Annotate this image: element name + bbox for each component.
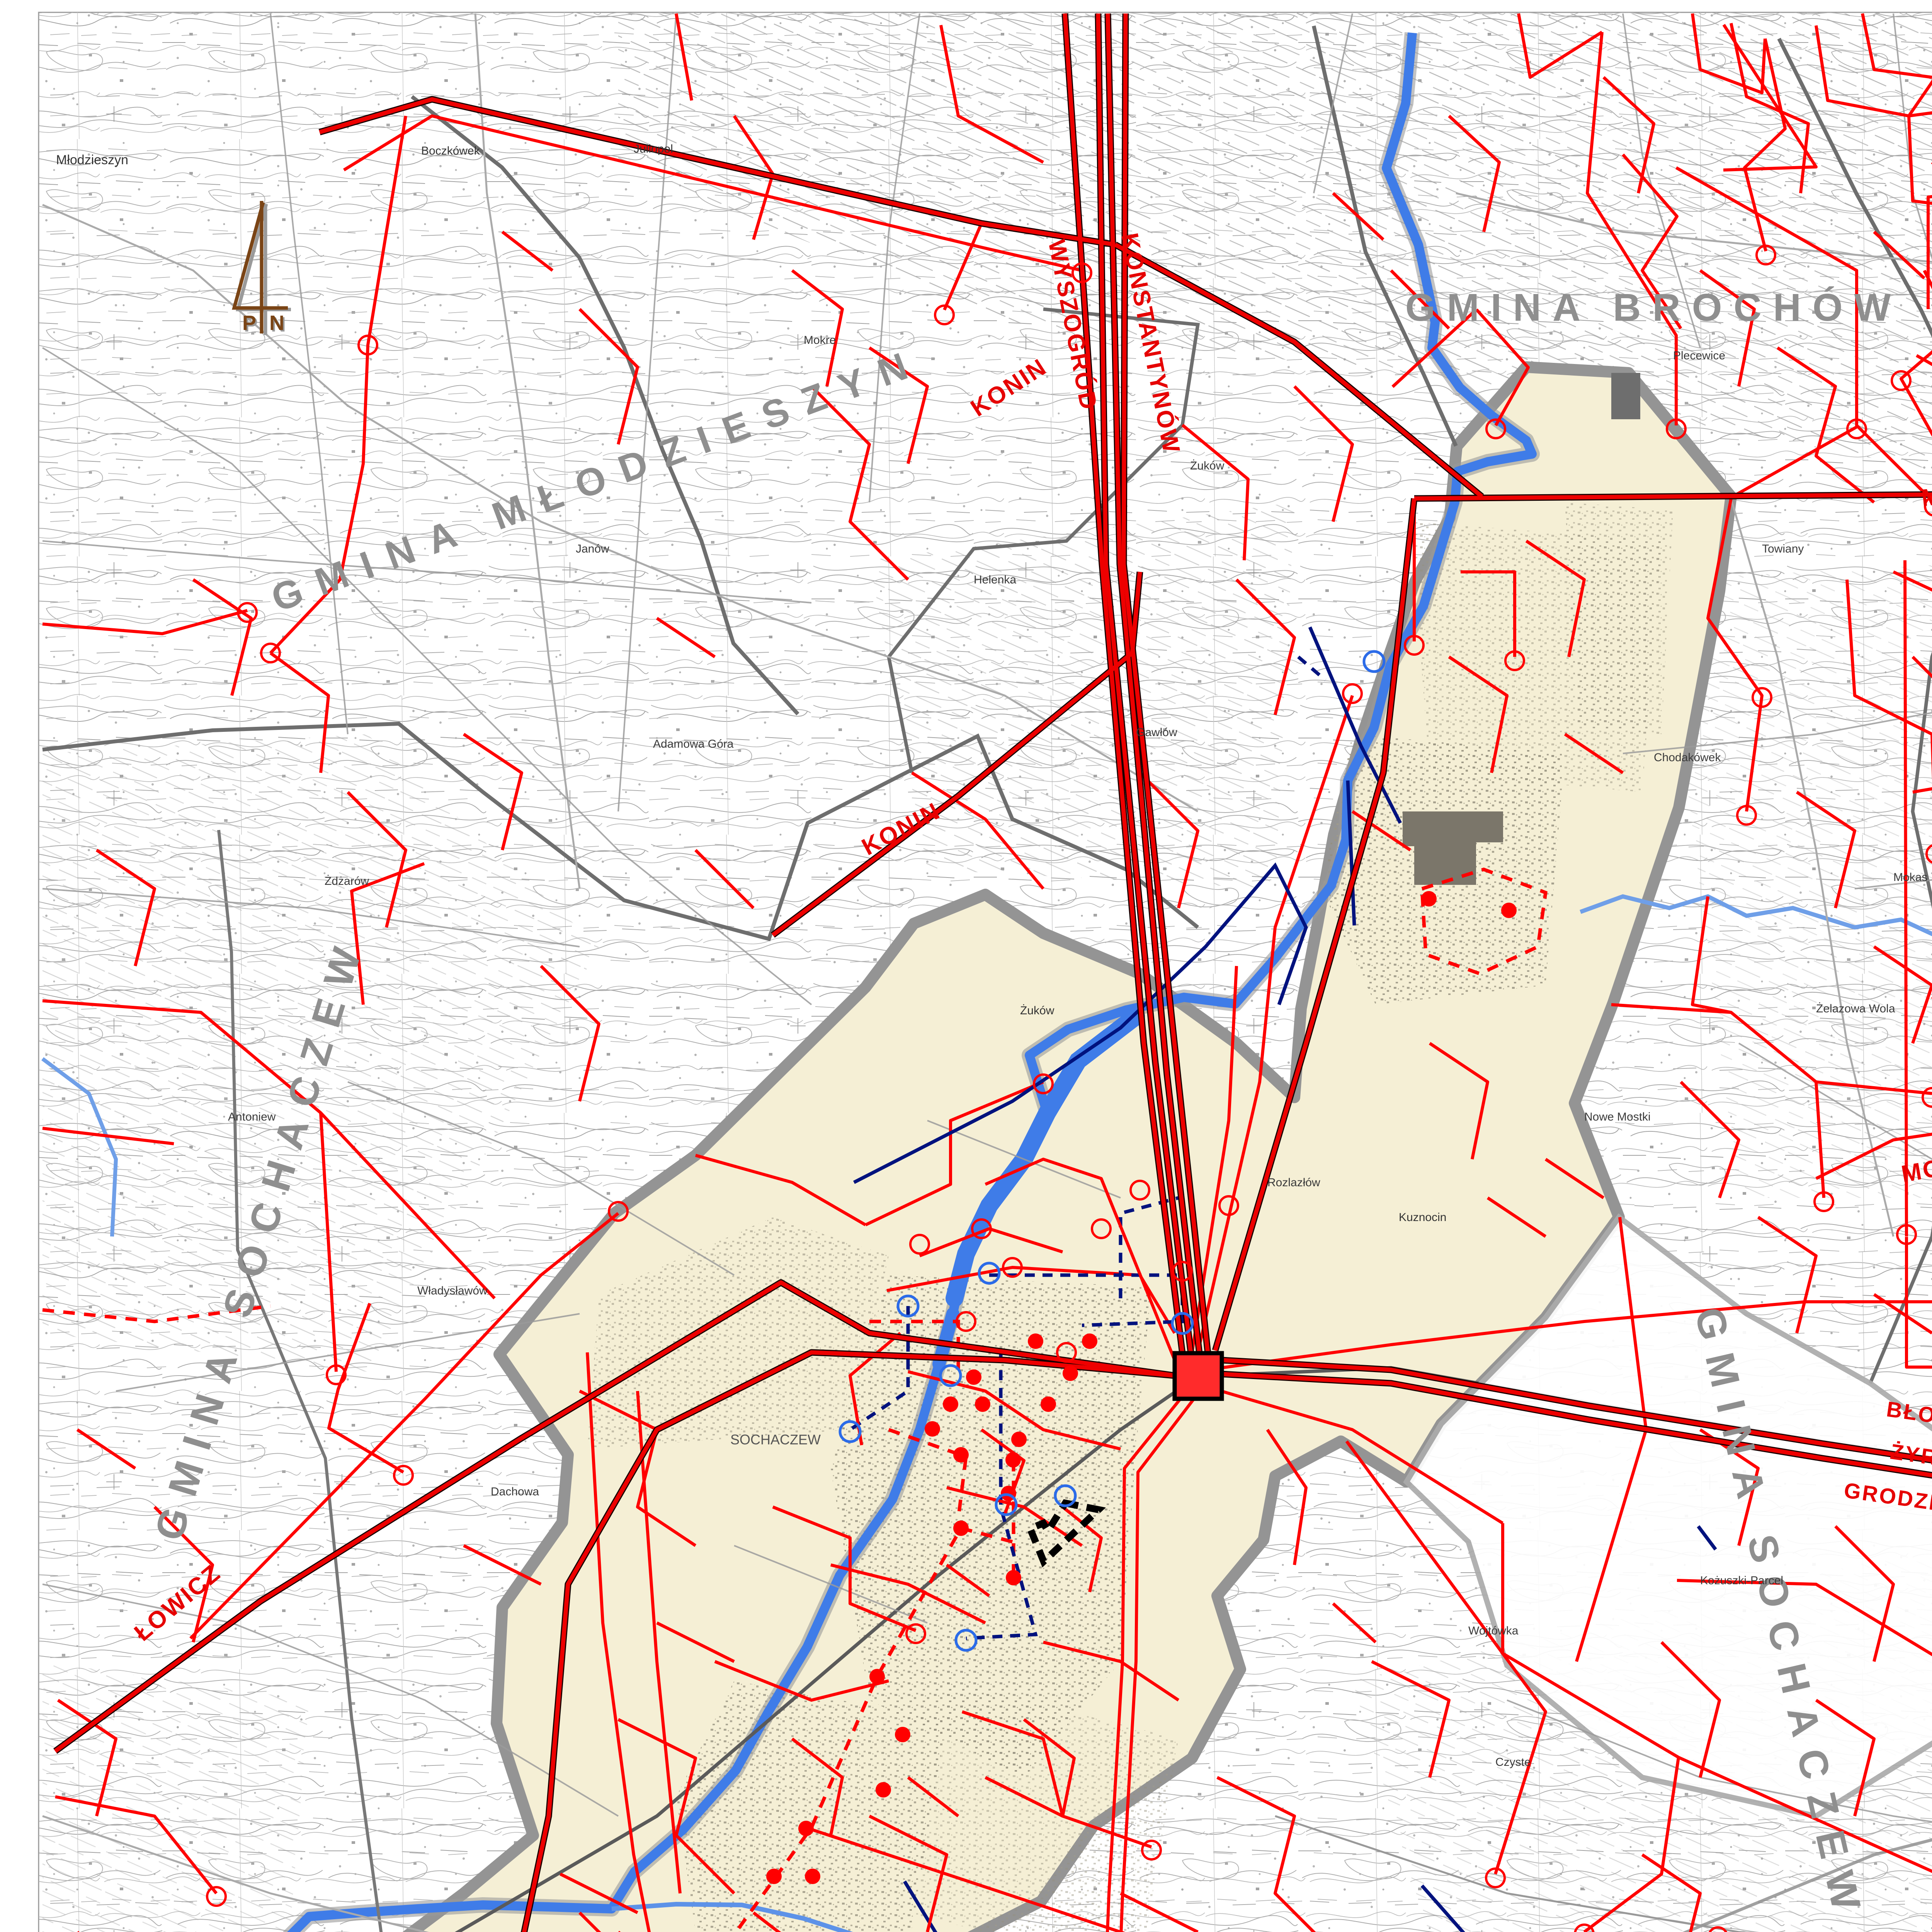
svg-text:Młodzieszyn: Młodzieszyn	[56, 153, 128, 167]
svg-text:SOCHACZEW: SOCHACZEW	[730, 1432, 821, 1447]
svg-text:Dachowa: Dachowa	[491, 1485, 539, 1498]
svg-text:Żuków: Żuków	[1190, 459, 1225, 472]
svg-text:Gawłów: Gawłów	[1136, 726, 1177, 739]
svg-text:Antoniew: Antoniew	[228, 1111, 276, 1123]
svg-text:Helenka: Helenka	[974, 573, 1016, 586]
svg-text:P: P	[242, 311, 256, 335]
svg-text:Żdżarów: Żdżarów	[325, 875, 369, 888]
svg-text:Nowe Mostki: Nowe Mostki	[1584, 1111, 1651, 1123]
svg-text:N: N	[269, 311, 284, 335]
svg-text:Wojtówka: Wojtówka	[1468, 1624, 1519, 1637]
svg-text:Żelazowa Wola: Żelazowa Wola	[1816, 1002, 1895, 1015]
svg-text:Mokre: Mokre	[804, 334, 836, 347]
svg-text:Chodakówek: Chodakówek	[1654, 751, 1721, 764]
svg-text:Kożuszki-Parcel: Kożuszki-Parcel	[1700, 1574, 1783, 1587]
svg-text:Juliopol: Juliopol	[634, 143, 673, 155]
svg-text:GMINA BROCHÓW: GMINA BROCHÓW	[1405, 286, 1902, 329]
svg-text:Janów: Janów	[576, 543, 609, 555]
svg-text:Żuków: Żuków	[1020, 1004, 1054, 1017]
svg-text:Towiany: Towiany	[1762, 543, 1804, 555]
svg-text:Adamowa Góra: Adamowa Góra	[653, 738, 734, 750]
svg-text:Władysławów: Władysławów	[417, 1284, 488, 1297]
svg-text:Plecewice: Plecewice	[1673, 349, 1725, 362]
svg-text:Kuznocin: Kuznocin	[1399, 1211, 1446, 1224]
svg-text:Mokas: Mokas	[1893, 871, 1927, 884]
svg-text:Czyste: Czyste	[1495, 1756, 1531, 1769]
svg-text:Boczkówek: Boczkówek	[421, 145, 480, 157]
svg-text:Rozlazłów: Rozlazłów	[1267, 1176, 1320, 1189]
